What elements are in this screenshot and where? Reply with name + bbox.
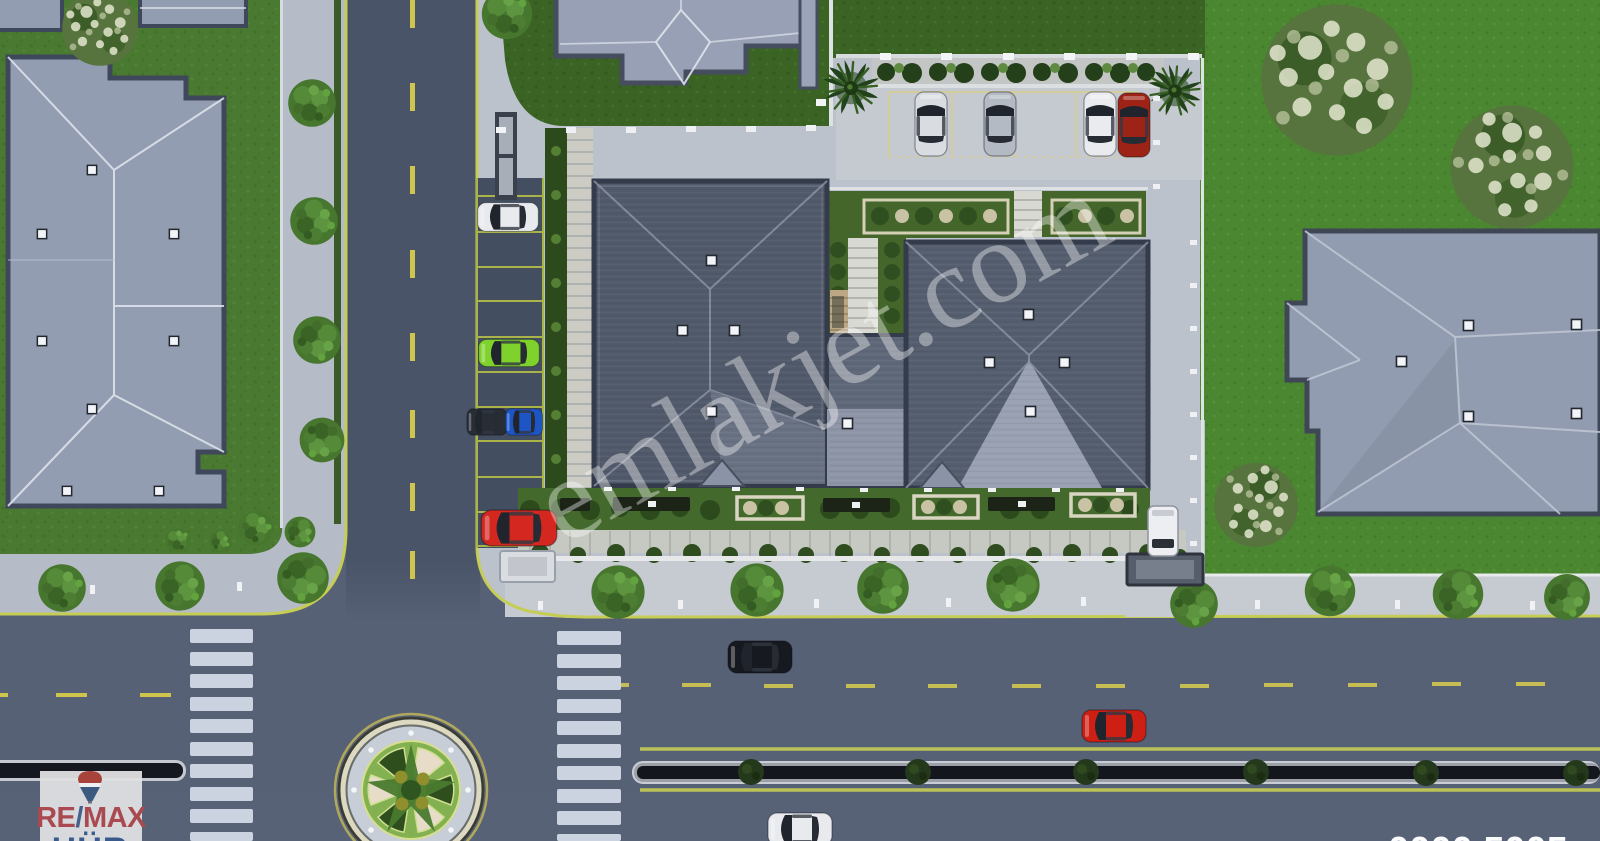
svg-text:HÜR: HÜR (52, 831, 129, 841)
svg-text:RE/MAX: RE/MAX (36, 802, 147, 834)
svg-text:0000 5005: 0000 5005 (1388, 830, 1568, 841)
